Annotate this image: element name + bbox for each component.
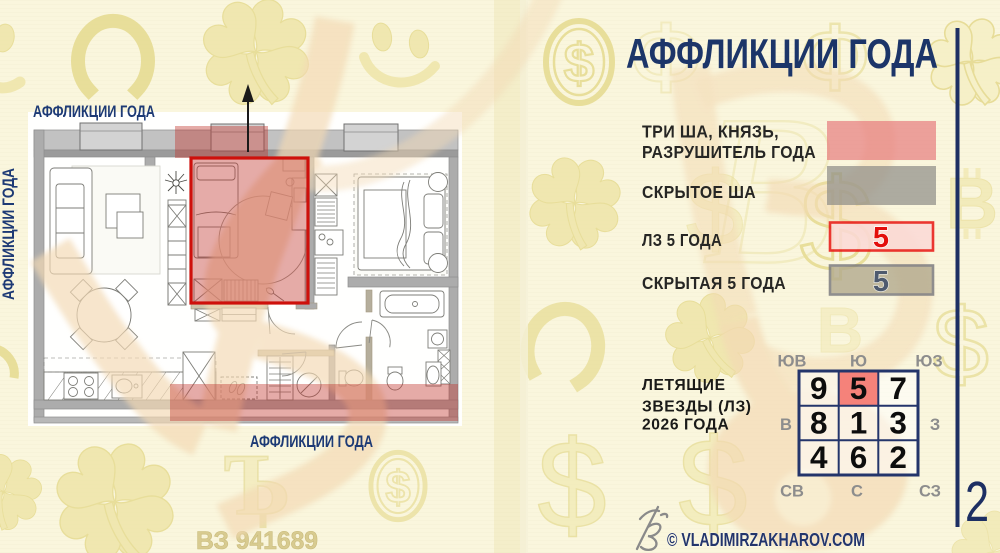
svg-text:Ю: Ю: [850, 353, 867, 371]
svg-text:АФФЛИКЦИИ ГОДА: АФФЛИКЦИИ ГОДА: [626, 30, 938, 77]
svg-text:2026 ГОДА: 2026 ГОДА: [642, 417, 729, 434]
svg-text:$: $: [537, 416, 607, 553]
svg-text:5: 5: [873, 222, 889, 254]
svg-text:6: 6: [850, 439, 868, 475]
svg-text:ТРИ ША, КНЯЗЬ,: ТРИ ША, КНЯЗЬ,: [642, 122, 779, 142]
svg-text:7: 7: [889, 370, 907, 406]
svg-text:АФФЛИКЦИИ ГОДА: АФФЛИКЦИИ ГОДА: [0, 168, 18, 300]
svg-text:ЗВЕЗДЫ (ЛЗ): ЗВЕЗДЫ (ЛЗ): [642, 399, 752, 416]
svg-text:B: B: [946, 164, 998, 244]
svg-text:© VLADIMIRZAKHAROV.COM: © VLADIMIRZAKHAROV.COM: [667, 529, 865, 550]
svg-text:5: 5: [873, 266, 889, 298]
svg-text:РАЗРУШИТЕЛЬ ГОДА: РАЗРУШИТЕЛЬ ГОДА: [642, 142, 816, 162]
svg-text:2: 2: [889, 439, 907, 475]
svg-text:СЗ: СЗ: [919, 483, 941, 501]
svg-text:З: З: [930, 416, 940, 434]
svg-text:1: 1: [850, 405, 868, 441]
svg-text:В: В: [780, 416, 792, 434]
svg-text:С: С: [851, 483, 863, 501]
svg-text:АФФЛИКЦИИ ГОДА: АФФЛИКЦИИ ГОДА: [250, 433, 373, 451]
svg-text:СКРЫТАЯ 5 ГОДА: СКРЫТАЯ 5 ГОДА: [642, 273, 786, 293]
svg-text:ЮЗ: ЮЗ: [915, 353, 942, 371]
svg-text:ЮВ: ЮВ: [778, 353, 807, 371]
svg-text:ЛЗ 5 ГОДА: ЛЗ 5 ГОДА: [642, 230, 722, 250]
svg-text:АФФЛИКЦИИ ГОДА: АФФЛИКЦИИ ГОДА: [33, 103, 155, 121]
svg-text:4: 4: [810, 439, 828, 475]
svg-text:3: 3: [889, 405, 907, 441]
svg-text:9: 9: [810, 370, 828, 406]
svg-text:ЛЕТЯЩИЕ: ЛЕТЯЩИЕ: [642, 377, 726, 394]
svg-text:2: 2: [965, 469, 989, 533]
svg-text:$: $: [933, 288, 989, 400]
svg-text:5: 5: [850, 370, 868, 406]
svg-text:СКРЫТОЕ ША: СКРЫТОЕ ША: [642, 182, 756, 202]
svg-text:СВ: СВ: [780, 483, 804, 501]
svg-text:ВЗ 941689: ВЗ 941689: [196, 527, 318, 553]
svg-text:8: 8: [810, 405, 828, 441]
